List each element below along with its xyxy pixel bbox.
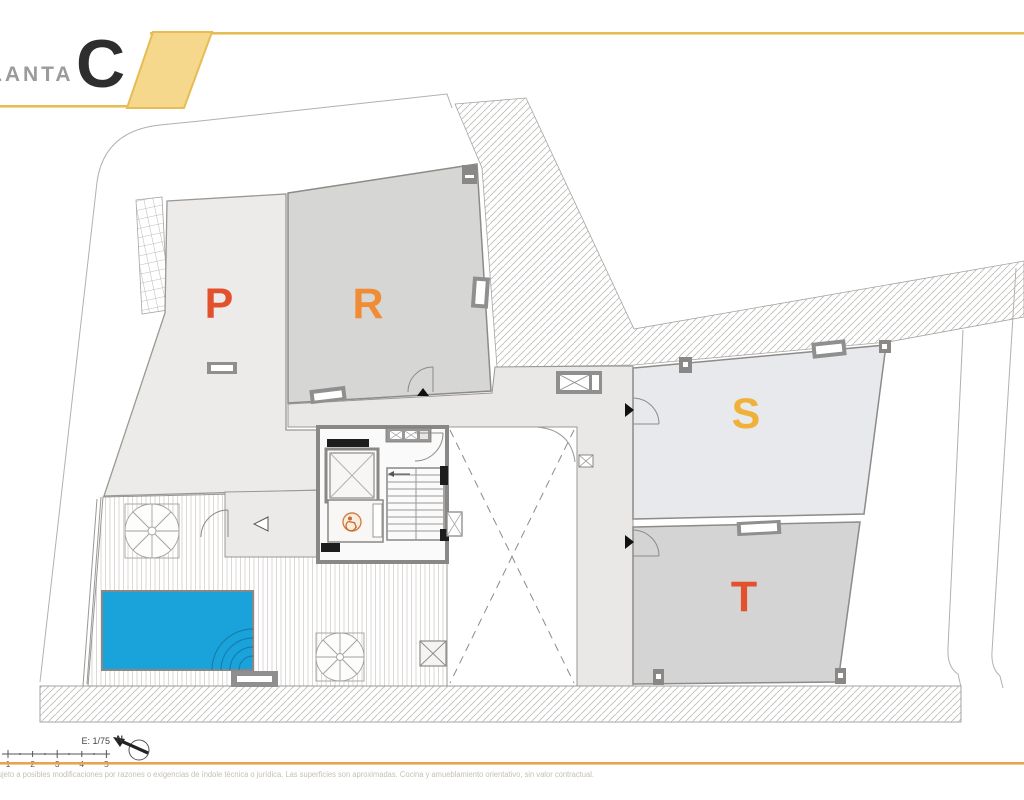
room-label-p: P — [205, 280, 234, 328]
skylight — [420, 641, 446, 666]
wc-room — [328, 500, 383, 542]
room-label-t: T — [731, 573, 757, 621]
floor-plan-svg: PLANTA C — [0, 0, 1024, 800]
exterior-stair-strip — [136, 197, 168, 314]
window-tag — [207, 362, 237, 374]
pool-water — [102, 591, 253, 670]
central-core — [318, 427, 462, 562]
header: PLANTA C — [0, 26, 1024, 108]
vent-shaft-tag — [556, 371, 602, 394]
room-r — [288, 164, 491, 403]
spiral-stair-1 — [125, 504, 179, 558]
staircase — [387, 468, 444, 540]
void-patio — [447, 427, 577, 686]
north-needle — [121, 741, 148, 753]
footer-accent-line — [0, 762, 1024, 765]
disclaimer-text: sujeto a posibles modificaciones por raz… — [0, 770, 594, 779]
neighbor-wall-hatch — [455, 98, 1024, 367]
site-boundary-right-inner — [948, 330, 963, 687]
sidewalk-hatch — [40, 686, 961, 722]
corner-marker — [653, 669, 664, 685]
north-indicator: N — [113, 734, 149, 760]
yellow-band-top — [150, 32, 1024, 35]
core-utility-tag — [386, 428, 431, 442]
floor-letter: C — [76, 26, 125, 102]
spiral-stair-2 — [316, 633, 364, 681]
site-boundary-right-outer — [992, 268, 1016, 688]
scale-bar-line — [2, 750, 110, 758]
north-label: N — [117, 734, 124, 744]
window-tag — [471, 276, 490, 308]
elevator-shaft — [326, 449, 378, 502]
corner-marker — [879, 340, 891, 353]
core-shaft-box — [447, 512, 462, 536]
room-label-s: S — [732, 390, 761, 438]
window-tag — [737, 520, 782, 536]
floor-label: PLANTA — [0, 63, 74, 86]
corner-marker — [462, 165, 477, 184]
corner-marker — [835, 668, 846, 684]
corner-marker — [679, 357, 692, 373]
vent-shaft-small — [579, 455, 593, 467]
pool-bench — [231, 671, 278, 687]
scale-label: E: 1/75 — [81, 736, 110, 746]
room-label-r: R — [352, 280, 383, 328]
floor-plan-page: PLANTA C — [0, 0, 1024, 800]
accessible-wc-icon — [343, 513, 361, 531]
yellow-parallelogram — [127, 32, 212, 108]
